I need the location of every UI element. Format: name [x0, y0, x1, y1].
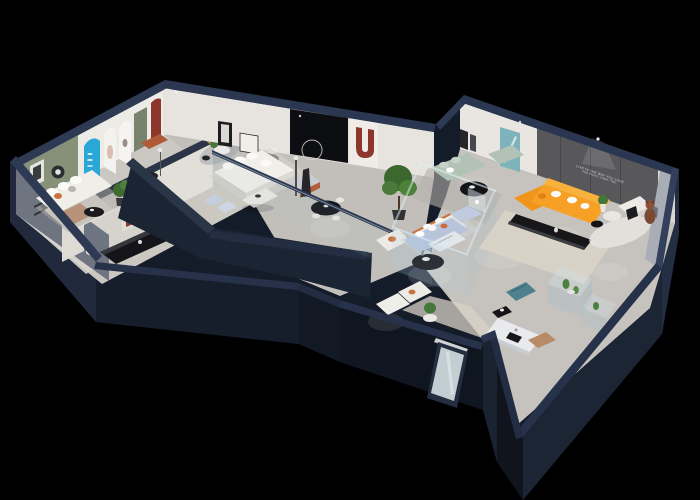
sage-table-deco	[469, 185, 475, 188]
floor-lamp-2-head	[294, 156, 299, 160]
black-chair	[202, 156, 210, 161]
console-deco	[138, 240, 142, 244]
table-deco-white	[90, 209, 94, 211]
sage-pillow-white	[446, 167, 454, 172]
floor-lamp-head	[158, 148, 163, 152]
plant-right	[598, 195, 608, 205]
orange-pillow-white-1	[551, 191, 561, 197]
bear-ear-2	[652, 201, 655, 204]
cabinet-items	[475, 200, 479, 204]
sect-pillow-3	[247, 153, 258, 160]
case-pedestal	[567, 290, 575, 294]
counter-faucet	[515, 329, 518, 332]
art-small-dark-2	[470, 134, 476, 152]
art-black-mat	[221, 124, 229, 143]
blue-sofa-pillow-2	[428, 225, 437, 231]
case-cactus-1	[563, 279, 570, 289]
plant-on-table	[424, 303, 436, 314]
poster-figure	[107, 145, 113, 159]
pair-orange-pillow	[409, 290, 416, 295]
sofa-cushion-3	[70, 176, 82, 184]
tree-foliage-3	[382, 181, 398, 195]
bear-ear-1	[646, 201, 649, 204]
shelf-items-white	[500, 309, 504, 312]
sage-cushion-1	[439, 162, 449, 168]
orange-pillow-white-2	[567, 197, 577, 203]
showroom-floorplan-render: LIVE IN THE WAY YOU LOVEAND ENJOY HOME T…	[0, 0, 700, 500]
sect-pillow-4	[261, 160, 272, 167]
floor-glow-7	[592, 263, 628, 281]
case-2-plant	[593, 302, 599, 310]
pillow-orange	[54, 193, 62, 199]
floorplan-render-canvas: LIVE IN THE WAY YOU LOVEAND ENJOY HOME T…	[0, 0, 700, 500]
bar-seat-3	[336, 198, 344, 203]
orange-pillow-dark	[538, 193, 546, 199]
vase-right	[600, 204, 606, 212]
bear-statue-body	[645, 208, 656, 224]
wall-plate-inner	[55, 169, 61, 175]
plant-side-table	[423, 314, 437, 322]
coffee-table-black	[84, 207, 104, 217]
art-small-dark-1	[460, 129, 468, 150]
art-white-canvas	[240, 133, 258, 154]
ceiling-dot-1	[175, 91, 177, 93]
console-vase	[554, 228, 558, 233]
blue-sofa-pillow-orange	[441, 224, 448, 229]
ceiling-dot-2	[299, 115, 301, 117]
sage-cushion-2	[451, 157, 461, 163]
spotlight-dot	[596, 137, 599, 140]
orange-pillow-white-3	[581, 203, 590, 209]
blue-arch-text-mark-3	[87, 165, 93, 167]
arch2-art	[123, 139, 128, 147]
pillow-gray	[68, 186, 76, 192]
blue-arch-text-mark-1	[88, 153, 93, 155]
ceiling-dot-3	[519, 121, 521, 123]
feature-wall-seam-1	[560, 136, 561, 183]
blue-arch-text-mark-2	[87, 159, 93, 161]
bar-black-wall	[290, 109, 348, 163]
floor-lamp-pole	[160, 152, 161, 176]
